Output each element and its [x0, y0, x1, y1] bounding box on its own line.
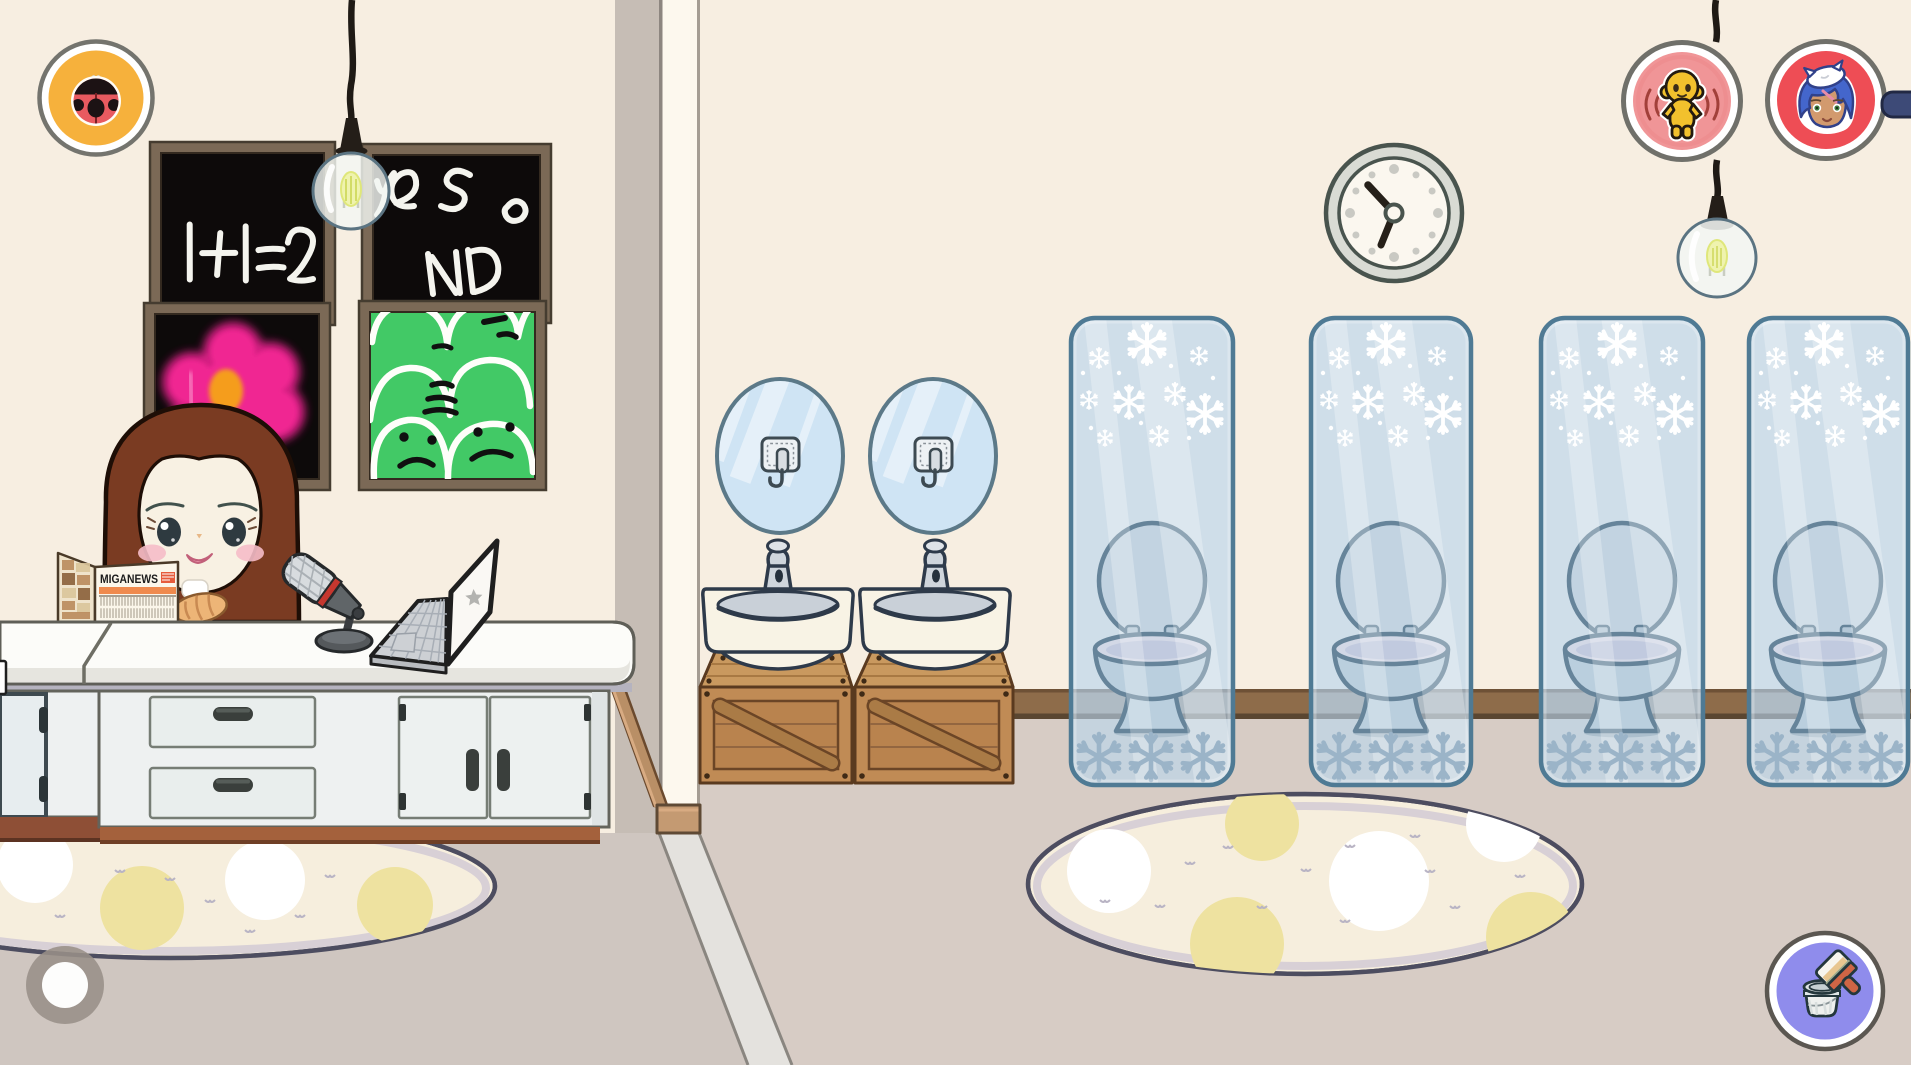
svg-text:MIGANEWS: MIGANEWS [100, 574, 158, 586]
